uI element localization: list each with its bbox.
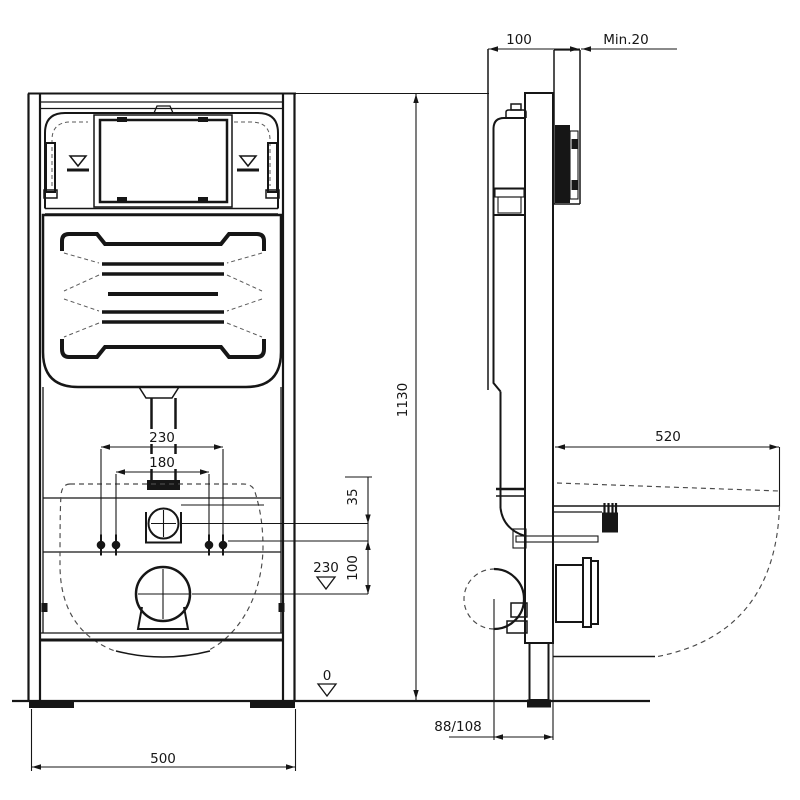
access-window-inner — [100, 120, 227, 202]
dim-label-bolt-outer: 230 — [149, 430, 175, 446]
tank-outline — [43, 215, 281, 387]
supply-comb-base — [602, 513, 618, 533]
outlet-stub — [556, 565, 583, 622]
window-mark-bottom-left — [117, 197, 127, 202]
recess-notch-bottom — [572, 180, 578, 190]
supply-comb-teeth — [605, 503, 617, 513]
cistern-wing-left-dashed — [52, 122, 88, 186]
window-mark-top-left — [117, 117, 127, 122]
cistern-wing-right-dashed — [234, 122, 270, 186]
side-view — [464, 49, 780, 708]
rail-clip-left — [42, 603, 48, 612]
dim-label-min-cover: Min.20 — [603, 32, 648, 48]
level-marker-triangle-0 — [318, 684, 336, 696]
access-window-outer — [94, 115, 232, 207]
drain-pipe — [530, 643, 549, 700]
dim-label-depth: 100 — [506, 32, 532, 48]
dim-label-bolt-inner: 180 — [149, 455, 175, 471]
cistern-top-tab — [154, 106, 173, 113]
dim-label-projection: 520 — [655, 429, 681, 445]
dim-label-35: 35 — [345, 488, 361, 505]
flush-valve-upper — [495, 189, 524, 197]
installation-frame-drawing: 230 180 1130 500 35 100 230 0 100 Min.20… — [0, 0, 800, 800]
level-label-0: 0 — [323, 668, 332, 684]
clip-right — [268, 143, 277, 192]
fill-valve-top — [511, 104, 521, 110]
frame-profile-bar — [525, 93, 553, 643]
dim-label-height: 1130 — [395, 383, 411, 417]
bowl-outline-dashed-left — [60, 484, 115, 651]
trap-solid-arc — [494, 569, 524, 629]
cistern-side-outline — [494, 118, 526, 392]
flush-valve-lower — [498, 197, 521, 213]
bowl-bottom-arc — [116, 651, 210, 657]
outlet-cap — [591, 561, 598, 624]
water-level-icon-right — [240, 156, 256, 166]
outlet-flange — [583, 558, 591, 627]
level-marker-triangle-230 — [317, 577, 335, 589]
dim-label-drain-offset: 88/108 — [434, 719, 482, 735]
dim-label-width: 500 — [150, 751, 176, 767]
rail-clip-right — [279, 603, 285, 612]
bowl-front-dashed-arc — [655, 506, 780, 657]
dim-label-100-vert: 100 — [345, 555, 361, 581]
bowl-top-dashed — [557, 483, 779, 491]
flush-pipe-adapter — [139, 387, 179, 398]
trap-dashed-arc — [464, 569, 494, 629]
clip-left — [46, 143, 55, 192]
level-label-230: 230 — [313, 560, 339, 576]
flush-pipe-gasket — [147, 480, 180, 490]
flush-plate-recess — [555, 125, 570, 203]
window-mark-bottom-right — [198, 197, 208, 202]
tank-insulation-ribs — [62, 234, 264, 357]
threaded-rod — [516, 536, 598, 542]
technical-drawing-page: 230 180 1130 500 35 100 230 0 100 Min.20… — [0, 0, 800, 800]
window-mark-top-right — [198, 117, 208, 122]
recess-notch-top — [572, 139, 578, 149]
front-view — [28, 94, 296, 709]
water-level-icon-left — [70, 156, 86, 166]
fill-valve-cap — [506, 110, 526, 118]
